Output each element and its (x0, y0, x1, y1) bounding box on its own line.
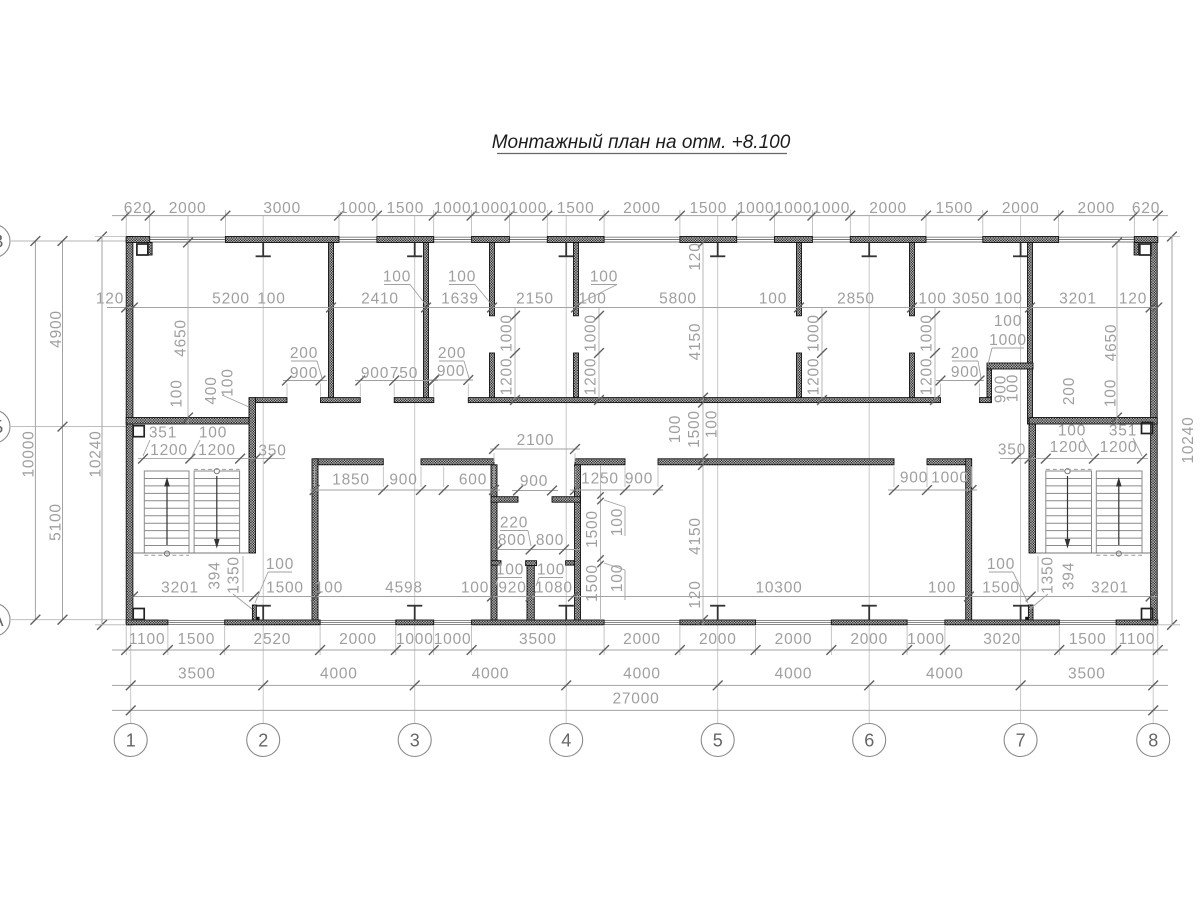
svg-text:10240: 10240 (88, 430, 105, 477)
svg-text:900: 900 (437, 363, 465, 380)
svg-text:1850: 1850 (332, 472, 370, 489)
svg-text:1080: 1080 (535, 580, 573, 597)
svg-text:3020: 3020 (983, 631, 1021, 648)
svg-text:900: 900 (625, 471, 653, 488)
svg-text:1500: 1500 (177, 631, 215, 648)
svg-text:1350: 1350 (226, 556, 243, 594)
svg-text:200: 200 (1061, 377, 1078, 405)
svg-text:1200: 1200 (1100, 439, 1138, 456)
svg-text:3201: 3201 (1059, 291, 1097, 308)
svg-text:1000: 1000 (509, 200, 547, 217)
svg-text:120: 120 (96, 291, 124, 308)
svg-text:351: 351 (149, 425, 177, 442)
svg-text:3500: 3500 (519, 631, 557, 648)
svg-text:Монтажный план на отм. +8.100: Монтажный план на отм. +8.100 (492, 132, 791, 153)
svg-text:200: 200 (438, 345, 466, 362)
svg-text:100: 100 (496, 562, 524, 579)
svg-text:4000: 4000 (472, 666, 510, 683)
svg-text:5: 5 (713, 731, 723, 751)
svg-text:2000: 2000 (1002, 200, 1040, 217)
svg-text:100: 100 (609, 564, 626, 592)
svg-text:4650: 4650 (1103, 324, 1120, 362)
svg-text:3201: 3201 (1091, 580, 1129, 597)
svg-text:4598: 4598 (385, 580, 423, 597)
svg-text:4150: 4150 (687, 517, 704, 555)
svg-text:1500: 1500 (386, 200, 424, 217)
svg-text:100: 100 (461, 580, 489, 597)
svg-text:620: 620 (124, 200, 152, 217)
svg-text:1200: 1200 (806, 358, 823, 396)
svg-text:100: 100 (1058, 423, 1086, 440)
svg-text:2000: 2000 (775, 631, 813, 648)
svg-text:100: 100 (257, 291, 285, 308)
svg-text:100: 100 (383, 269, 411, 286)
svg-text:1500: 1500 (936, 200, 974, 217)
svg-text:27000: 27000 (612, 691, 659, 708)
svg-text:1200: 1200 (198, 442, 236, 459)
svg-text:120: 120 (687, 242, 704, 270)
svg-text:1500: 1500 (689, 200, 727, 217)
svg-text:1000: 1000 (499, 314, 516, 352)
svg-text:5200: 5200 (212, 291, 250, 308)
svg-text:1500: 1500 (266, 580, 304, 597)
svg-text:7: 7 (1016, 731, 1026, 751)
svg-text:1000: 1000 (434, 631, 472, 648)
svg-text:3: 3 (410, 731, 420, 751)
svg-text:1500: 1500 (584, 510, 601, 548)
svg-text:5800: 5800 (659, 291, 697, 308)
svg-text:1000: 1000 (989, 332, 1027, 349)
svg-text:6: 6 (864, 731, 874, 751)
svg-text:100: 100 (994, 291, 1022, 308)
svg-text:1000: 1000 (434, 200, 472, 217)
svg-text:400: 400 (203, 376, 220, 404)
svg-text:10300: 10300 (755, 580, 802, 597)
svg-text:4000: 4000 (926, 666, 964, 683)
svg-text:100: 100 (537, 562, 565, 579)
svg-text:100: 100 (266, 556, 294, 573)
svg-text:1200: 1200 (150, 442, 188, 459)
svg-text:100: 100 (918, 291, 946, 308)
svg-text:3000: 3000 (263, 200, 301, 217)
svg-text:100: 100 (994, 313, 1022, 330)
svg-text:200: 200 (951, 345, 979, 362)
svg-text:100: 100 (609, 508, 626, 536)
svg-text:351: 351 (1109, 423, 1137, 440)
svg-text:1500: 1500 (686, 410, 703, 448)
svg-text:2850: 2850 (837, 291, 875, 308)
svg-text:394: 394 (1060, 562, 1077, 590)
svg-text:1100: 1100 (129, 631, 166, 648)
svg-text:800: 800 (498, 532, 526, 549)
svg-text:200: 200 (290, 345, 318, 362)
svg-text:100: 100 (169, 379, 186, 407)
svg-text:1500: 1500 (982, 580, 1020, 597)
svg-text:2000: 2000 (699, 631, 737, 648)
svg-text:900: 900 (951, 364, 979, 381)
svg-text:900: 900 (520, 473, 548, 490)
svg-text:1200: 1200 (1050, 439, 1088, 456)
svg-text:2000: 2000 (850, 631, 888, 648)
svg-text:4000: 4000 (775, 666, 813, 683)
svg-text:900: 900 (900, 470, 928, 487)
svg-text:1000: 1000 (812, 200, 850, 217)
svg-text:120: 120 (1119, 291, 1147, 308)
svg-text:2100: 2100 (517, 432, 555, 449)
svg-text:2000: 2000 (623, 631, 661, 648)
svg-text:1100: 1100 (1119, 631, 1156, 648)
svg-text:100: 100 (667, 415, 684, 443)
svg-text:100: 100 (1005, 374, 1022, 402)
svg-text:1000: 1000 (339, 200, 377, 217)
svg-text:4: 4 (561, 731, 571, 751)
svg-text:1000: 1000 (931, 470, 969, 487)
svg-text:2410: 2410 (361, 291, 399, 308)
svg-text:1000: 1000 (775, 200, 813, 217)
svg-text:350: 350 (998, 442, 1026, 459)
svg-text:2000: 2000 (169, 200, 207, 217)
svg-text:1500: 1500 (1069, 631, 1107, 648)
svg-text:3500: 3500 (178, 666, 216, 683)
svg-text:3500: 3500 (1068, 666, 1106, 683)
svg-text:100: 100 (448, 269, 476, 286)
svg-text:2150: 2150 (516, 291, 554, 308)
svg-text:1000: 1000 (919, 314, 936, 352)
svg-text:4000: 4000 (623, 666, 661, 683)
svg-text:1000: 1000 (806, 314, 823, 352)
svg-text:4900: 4900 (48, 310, 65, 348)
svg-text:350: 350 (258, 443, 286, 460)
svg-text:Б: Б (0, 417, 3, 437)
svg-text:800: 800 (536, 532, 564, 549)
svg-text:2000: 2000 (869, 200, 907, 217)
svg-text:10000: 10000 (21, 430, 38, 477)
svg-text:100: 100 (578, 291, 606, 308)
svg-text:120: 120 (687, 580, 704, 608)
svg-text:220: 220 (500, 515, 528, 532)
svg-text:1639: 1639 (441, 291, 479, 308)
svg-text:394: 394 (207, 561, 224, 589)
svg-text:900: 900 (290, 365, 318, 382)
svg-text:2520: 2520 (254, 631, 292, 648)
svg-text:1: 1 (126, 731, 136, 751)
svg-text:4000: 4000 (320, 666, 358, 683)
svg-text:1000: 1000 (583, 314, 600, 352)
svg-text:1350: 1350 (1039, 556, 1056, 594)
svg-text:2000: 2000 (1078, 200, 1116, 217)
svg-text:1200: 1200 (499, 358, 516, 396)
svg-text:900: 900 (361, 365, 389, 382)
svg-text:3201: 3201 (161, 580, 199, 597)
svg-text:1250: 1250 (581, 471, 619, 488)
svg-text:1000: 1000 (396, 631, 434, 648)
svg-text:1200: 1200 (583, 358, 600, 396)
svg-text:2000: 2000 (339, 631, 377, 648)
svg-text:1000: 1000 (907, 631, 945, 648)
svg-text:100: 100 (928, 580, 956, 597)
svg-text:100: 100 (315, 580, 343, 597)
svg-text:3050: 3050 (952, 291, 990, 308)
svg-text:620: 620 (1132, 200, 1160, 217)
svg-text:1000: 1000 (472, 200, 510, 217)
svg-text:100: 100 (199, 425, 227, 442)
svg-text:2000: 2000 (623, 200, 661, 217)
svg-text:100: 100 (1103, 379, 1120, 407)
svg-text:100: 100 (759, 291, 787, 308)
svg-text:100: 100 (704, 410, 721, 438)
svg-text:10240: 10240 (1180, 416, 1197, 463)
svg-text:4150: 4150 (687, 323, 704, 361)
svg-text:100: 100 (987, 556, 1015, 573)
svg-text:8: 8 (1148, 731, 1158, 751)
svg-text:600: 600 (459, 472, 487, 489)
svg-text:1200: 1200 (919, 358, 936, 396)
svg-text:А: А (0, 610, 4, 630)
svg-text:5100: 5100 (48, 503, 65, 541)
svg-text:920: 920 (498, 580, 526, 597)
svg-text:100: 100 (590, 269, 618, 286)
svg-text:750: 750 (390, 365, 418, 382)
svg-text:900: 900 (389, 472, 417, 489)
svg-text:1500: 1500 (557, 200, 595, 217)
svg-text:1000: 1000 (737, 200, 775, 217)
svg-text:100: 100 (220, 368, 237, 396)
svg-text:4650: 4650 (173, 319, 190, 357)
svg-text:В: В (0, 232, 4, 252)
svg-text:2: 2 (258, 731, 268, 751)
